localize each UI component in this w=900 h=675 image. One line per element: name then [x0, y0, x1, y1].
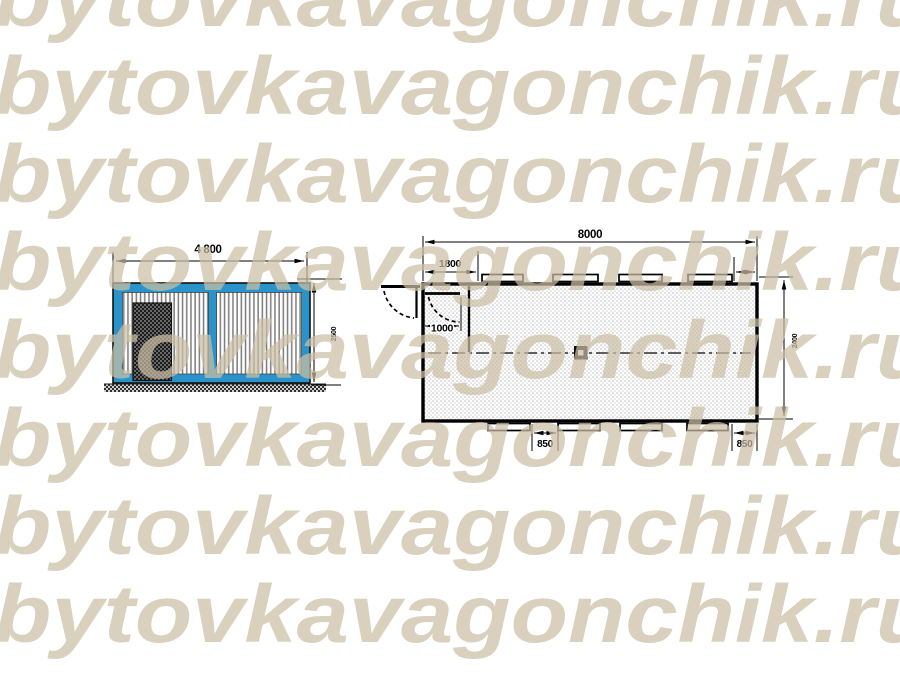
plan-windows-top — [482, 275, 732, 282]
dimension-width-4800 — [113, 252, 307, 282]
entrance-door — [133, 303, 172, 381]
dim-label-vestibule: 1800 — [439, 258, 462, 270]
dimension-top-right — [734, 257, 755, 281]
screenshot-canvas: 4 800 2500 8000 — [0, 0, 900, 675]
technical-drawing: 4 800 2500 8000 — [0, 0, 900, 675]
dim-label-end-gap: 850 — [737, 439, 754, 450]
stove-symbol — [574, 346, 588, 360]
siding-panel-right — [217, 293, 302, 375]
dim-label-height: 2500 — [331, 326, 338, 341]
window — [619, 275, 662, 282]
elevation-view: 4 800 2500 — [104, 244, 342, 392]
window — [687, 424, 728, 431]
dim-label-width: 4 800 — [194, 244, 221, 256]
dim-label-door: 1000 — [431, 323, 454, 335]
plan-view: 8000 1800 — [381, 229, 799, 451]
dim-label-length: 8000 — [578, 229, 602, 241]
plan-windows-bottom — [488, 424, 728, 431]
window — [688, 275, 732, 282]
window — [482, 275, 523, 282]
dim-label-window-gap: 850 — [537, 439, 554, 450]
dimension-depth — [759, 277, 793, 419]
dim-label-depth: 2400 — [792, 333, 799, 348]
exterior-door — [381, 287, 420, 319]
window — [553, 275, 598, 282]
window — [488, 424, 530, 431]
ground-hatch — [104, 385, 326, 393]
window — [558, 424, 600, 431]
window — [620, 424, 662, 431]
